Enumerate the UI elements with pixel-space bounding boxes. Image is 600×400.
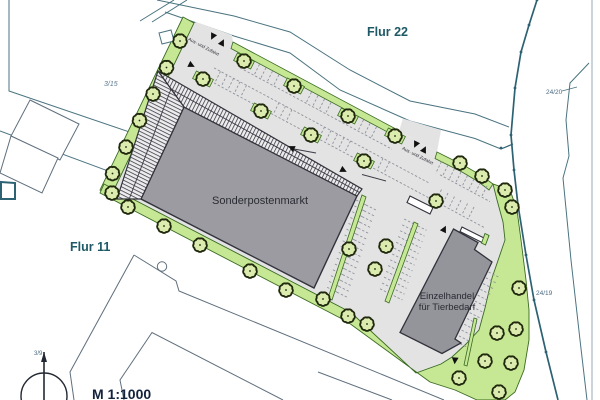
svg-text:M 1:1000: M 1:1000 <box>92 386 151 400</box>
svg-text:3/9: 3/9 <box>34 351 43 357</box>
svg-text:24/20: 24/20 <box>546 89 563 96</box>
svg-text:für Tierbedarf: für Tierbedarf <box>419 302 476 313</box>
svg-text:Flur 22: Flur 22 <box>367 25 408 39</box>
svg-text:24/19: 24/19 <box>536 290 553 297</box>
svg-text:3/15: 3/15 <box>104 81 118 88</box>
svg-text:Flur 11: Flur 11 <box>70 240 110 254</box>
svg-text:Sonderpostenmarkt: Sonderpostenmarkt <box>212 195 308 207</box>
svg-text:Einzelhandel: Einzelhandel <box>420 291 474 302</box>
